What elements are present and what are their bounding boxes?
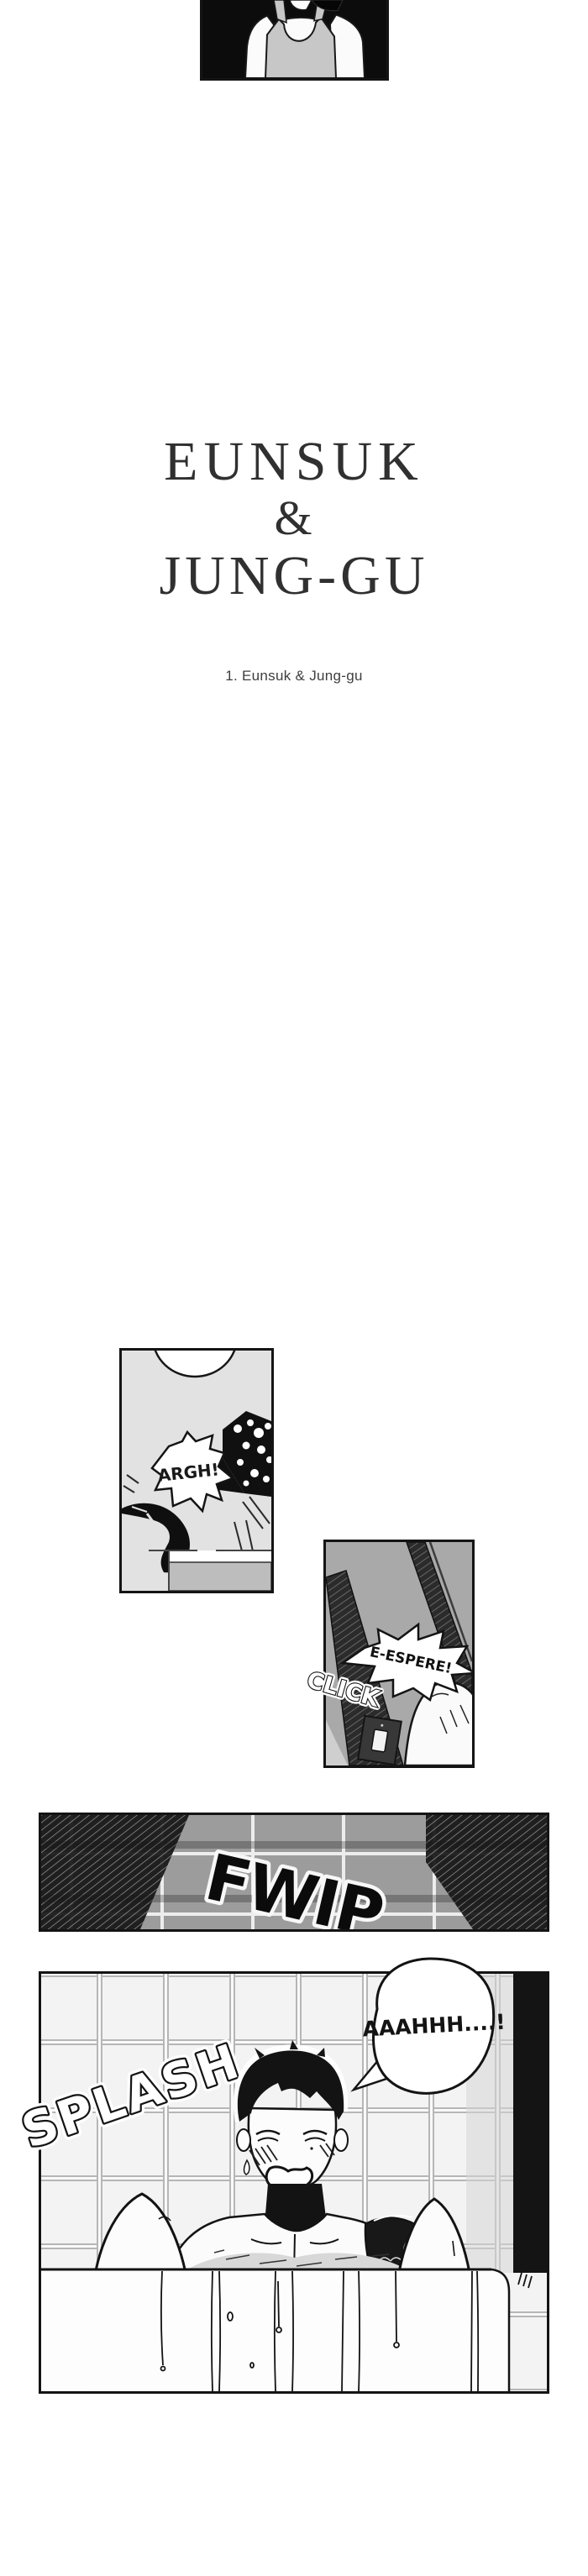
panel-espere: E-ESPERE! — [323, 1540, 475, 1768]
top-panel-art — [202, 0, 386, 78]
bath-panel-art: SPLASH SPLASH — [41, 1974, 547, 2391]
mole — [310, 2147, 312, 2149]
splash-outline: SPLASH — [15, 2033, 248, 2159]
panel-bath: SPLASH SPLASH — [39, 1971, 549, 2394]
chapter-label: 1. Eunsuk & Jung-gu — [0, 668, 588, 685]
fwip-text: FWIP — [199, 1839, 389, 1929]
title-ampersand: & — [0, 494, 588, 543]
fwip-sfx: FWIP FWIP — [199, 1839, 389, 1929]
panel-argh: ARGH! — [119, 1348, 274, 1593]
click-sfx: CLICK CLICK — [292, 1658, 390, 1723]
splash-sfx: SPLASH SPLASH — [15, 2033, 248, 2159]
title-line-1: EUNSUK — [0, 434, 588, 490]
bathtub-front — [41, 2269, 532, 2391]
title-line-2: JUNG-GU — [0, 548, 588, 604]
tanktop-figure — [245, 0, 365, 78]
espere-panel-art: E-ESPERE! — [326, 1542, 472, 1765]
reaching-arm — [405, 1682, 472, 1765]
panel-fwip: FWIP FWIP — [39, 1813, 549, 1932]
click-text: CLICK — [304, 1667, 383, 1713]
webtoon-page: EUNSUK & JUNG-GU 1. Eunsuk & Jung-gu — [0, 0, 588, 2576]
argh-speech-bubble: ARGH! — [152, 1432, 233, 1511]
sweat-drop — [244, 2160, 249, 2175]
fwip-panel-art: FWIP FWIP — [41, 1815, 547, 1929]
panel-top-partial — [200, 0, 389, 81]
argh-panel-art: ARGH! — [122, 1351, 271, 1591]
corner-shadow — [513, 1974, 547, 2273]
head-top-shape — [153, 1351, 237, 1377]
